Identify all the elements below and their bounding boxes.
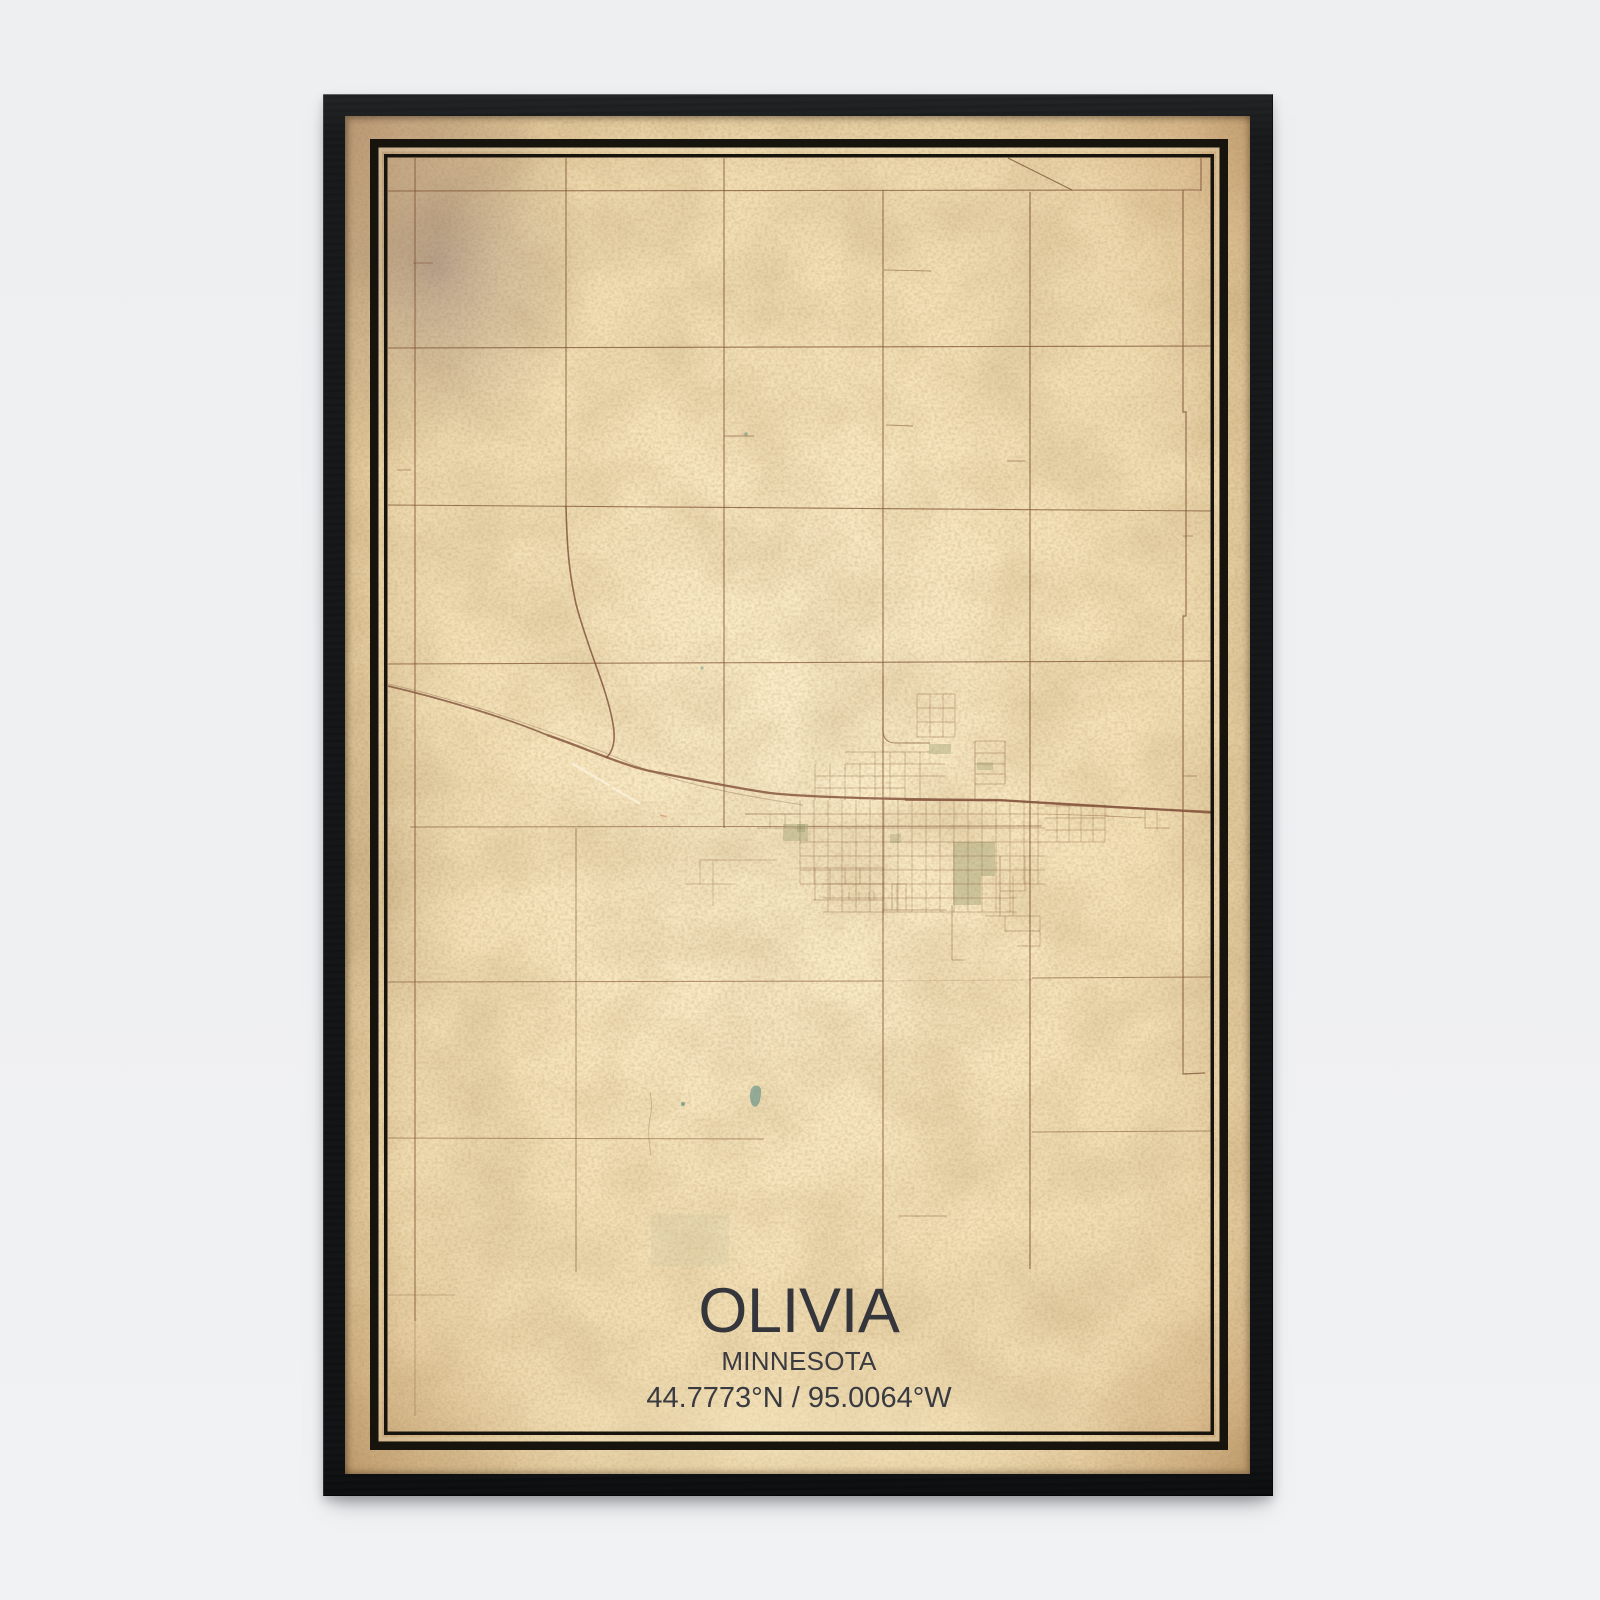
svg-text:MINNESOTA: MINNESOTA	[721, 1346, 877, 1376]
svg-text:OLIVIA: OLIVIA	[698, 1276, 900, 1346]
svg-text:44.7773°N / 95.0064°W: 44.7773°N / 95.0064°W	[646, 1382, 952, 1414]
